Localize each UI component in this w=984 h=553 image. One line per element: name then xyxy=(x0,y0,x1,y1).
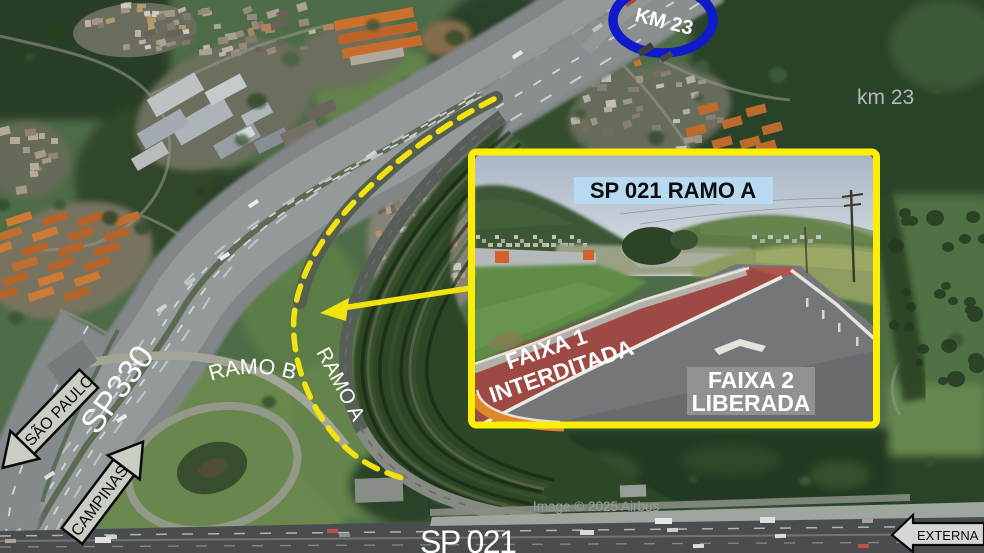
svg-text:EXTERNA: EXTERNA xyxy=(917,528,979,543)
svg-text:SP 021: SP 021 xyxy=(420,524,516,553)
svg-text:km 23: km 23 xyxy=(857,86,914,109)
svg-text:LIBERADA: LIBERADA xyxy=(692,390,811,416)
svg-text:Image © 2025 Airbus: Image © 2025 Airbus xyxy=(533,499,660,514)
svg-text:SP 021 RAMO A: SP 021 RAMO A xyxy=(590,178,756,203)
